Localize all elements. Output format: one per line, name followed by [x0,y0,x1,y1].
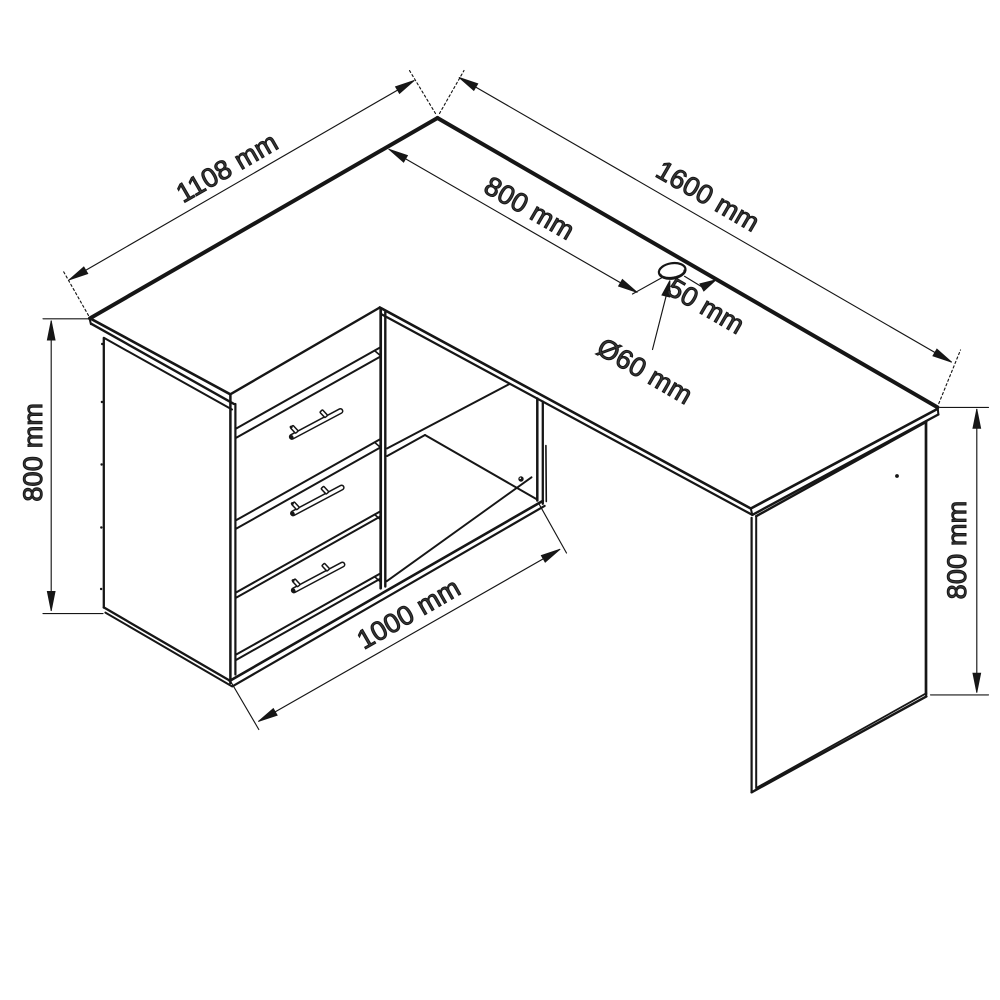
svg-text:800 mm: 800 mm [942,501,972,600]
svg-text:800 mm: 800 mm [18,403,48,502]
